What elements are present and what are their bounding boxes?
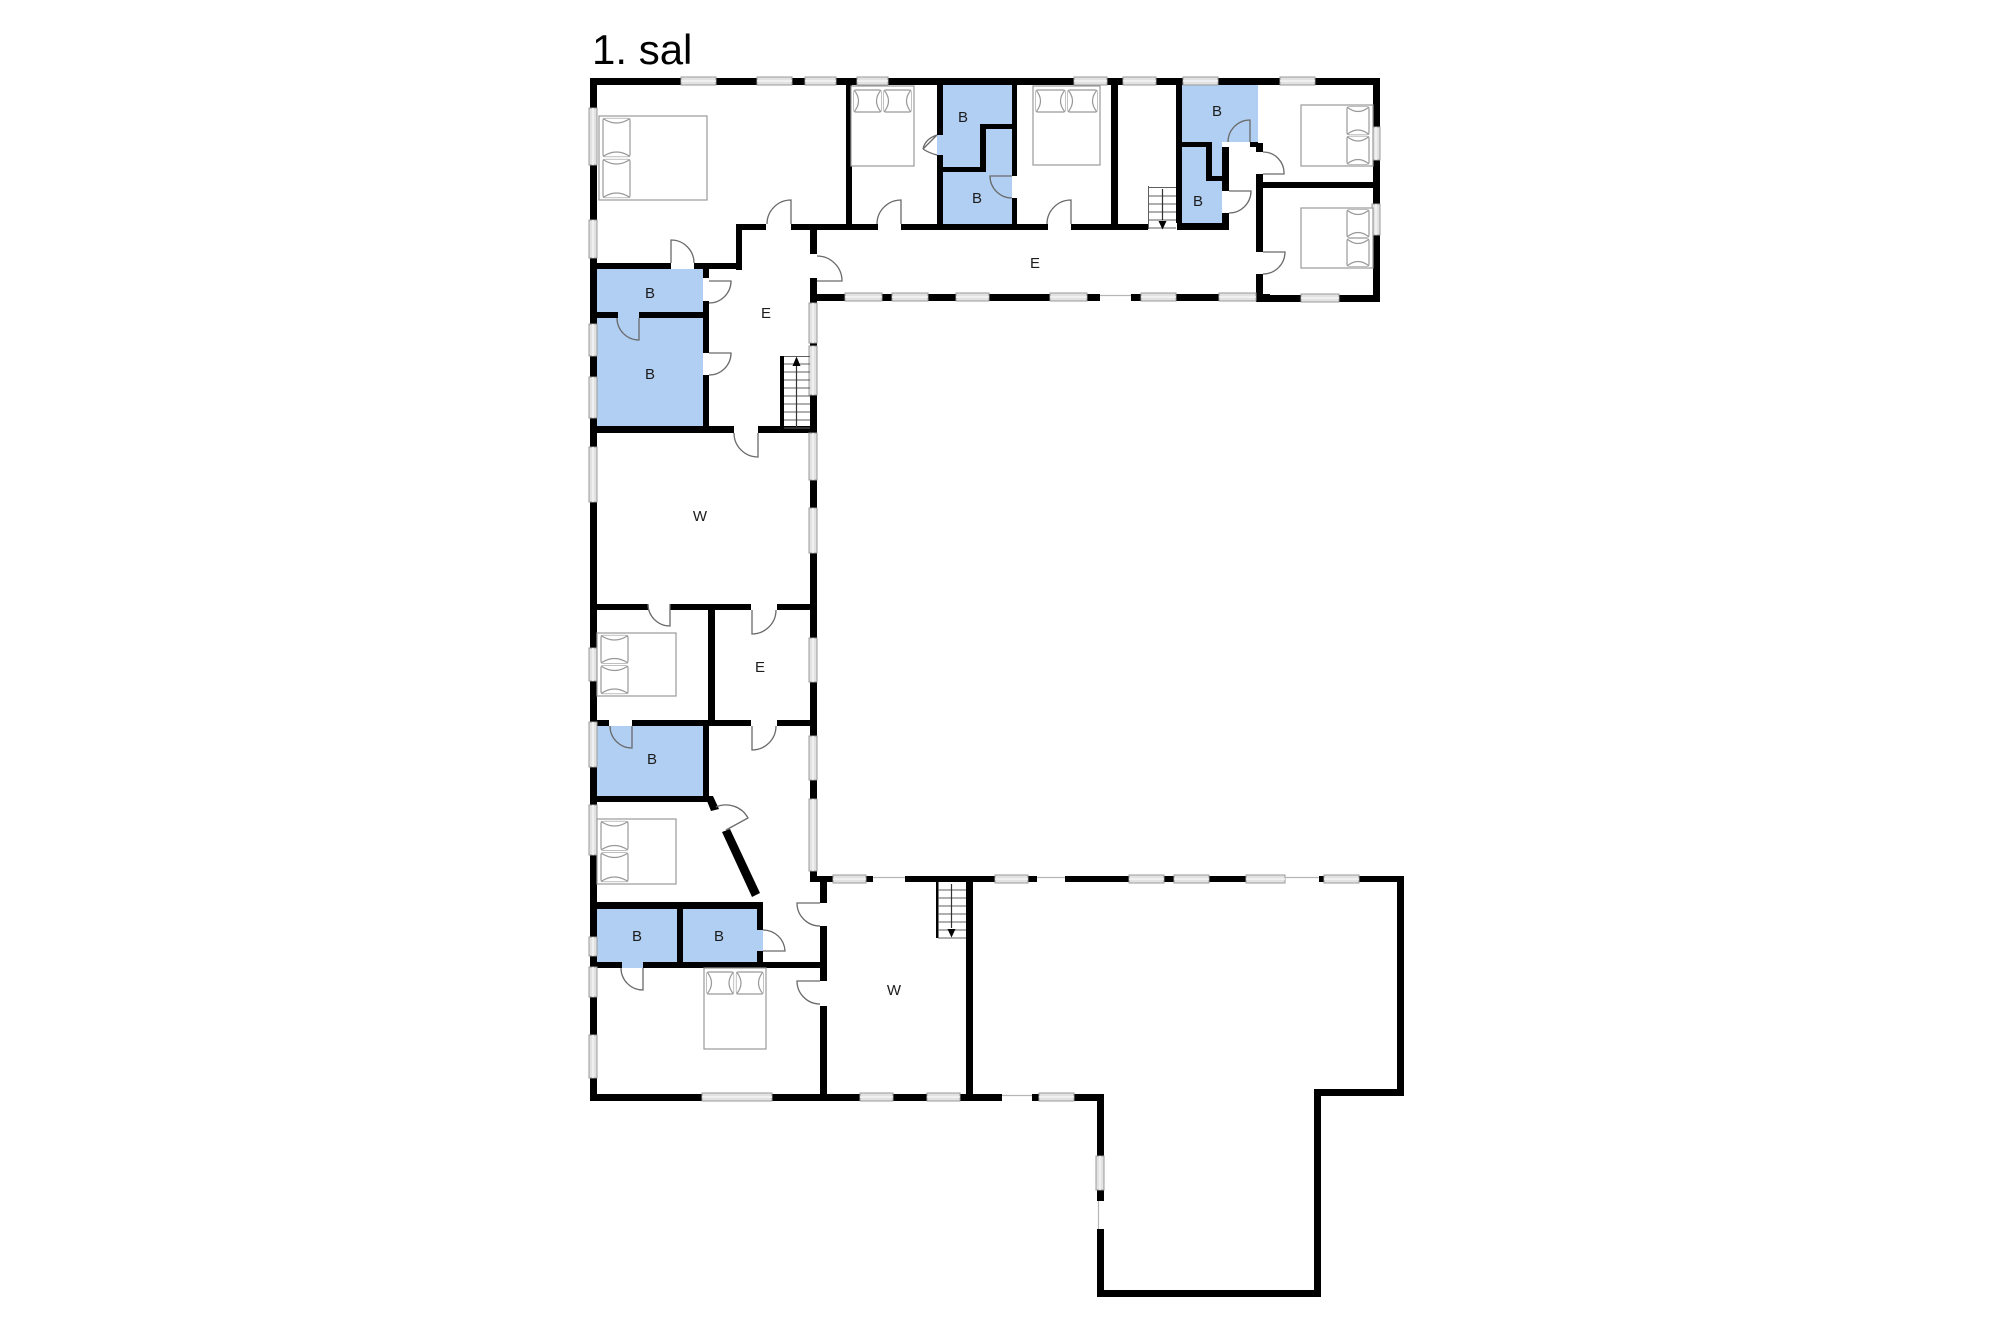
svg-text:B: B [1193, 193, 1203, 210]
svg-text:1. sal: 1. sal [592, 26, 692, 73]
svg-text:B: B [632, 928, 642, 945]
svg-text:E: E [1030, 255, 1040, 272]
svg-text:B: B [958, 109, 968, 126]
svg-text:E: E [755, 659, 765, 676]
svg-text:B: B [647, 751, 657, 768]
svg-text:E: E [761, 305, 771, 322]
svg-text:W: W [693, 508, 708, 525]
svg-text:B: B [645, 285, 655, 302]
svg-text:W: W [887, 982, 902, 999]
svg-text:B: B [714, 928, 724, 945]
svg-text:B: B [972, 190, 982, 207]
svg-text:B: B [1212, 103, 1222, 120]
svg-text:B: B [645, 366, 655, 383]
